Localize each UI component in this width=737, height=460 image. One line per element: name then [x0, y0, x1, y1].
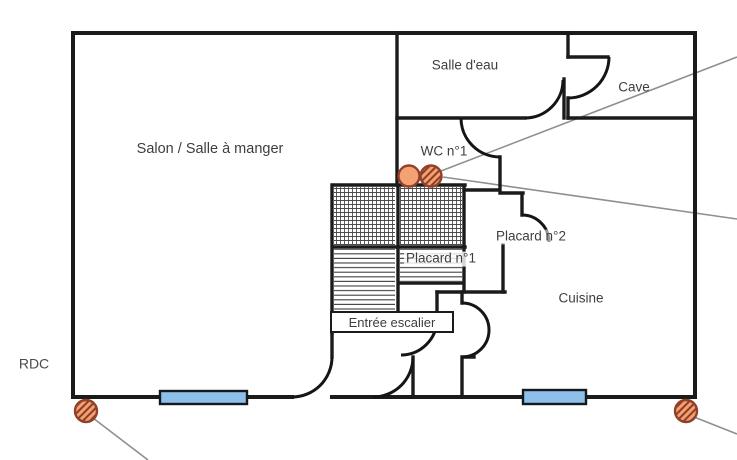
wall-cuisine-left	[462, 292, 474, 397]
door-arc-cave	[568, 57, 609, 98]
room-label-salon: Salon / Salle à manger	[137, 142, 284, 158]
window-symbol-left	[160, 391, 247, 404]
detector-marker-hatched-wc	[421, 166, 442, 187]
door-arc-cuisine	[462, 303, 489, 357]
callout-line-bottom-right	[694, 417, 737, 434]
room-label-entree: Entrée escalier	[349, 315, 436, 330]
room-label-wc: WC n°1	[421, 145, 468, 160]
door-arc-front-door	[292, 357, 332, 397]
room-label-placard2: Placard n°2	[495, 230, 567, 245]
room-label-salle-deau: Salle d'eau	[432, 59, 498, 74]
room-label-cave: Cave	[618, 81, 650, 96]
stairs-hatch-upper-right	[400, 187, 462, 245]
room-label-cuisine: Cuisine	[558, 292, 603, 307]
wall-wc-placard2	[464, 157, 523, 215]
detector-marker-hatched-bottom-right	[675, 400, 697, 422]
stairs-hatch-lower-left	[334, 249, 395, 311]
room-label-entree-box: Entrée escalier	[330, 311, 454, 333]
stairs-hatch-upper-left	[334, 187, 395, 245]
window-symbol-right	[523, 390, 586, 404]
door-arc-salle-deau	[525, 80, 563, 118]
room-label-placard1: Placard n°1	[404, 252, 478, 267]
detector-marker-hatched-bottom-left	[75, 400, 97, 422]
floor-plan-drawing	[0, 0, 737, 460]
detector-marker-plain-wc	[399, 166, 420, 187]
floor-label-rdc: RDC	[19, 356, 49, 371]
door-arc-hall	[373, 357, 413, 397]
callout-line-bottom-left	[93, 418, 148, 460]
callout-line-middle-right	[443, 177, 737, 219]
floor-plan-rdc: Salon / Salle à manger Salle d'eau Cave …	[0, 0, 737, 460]
